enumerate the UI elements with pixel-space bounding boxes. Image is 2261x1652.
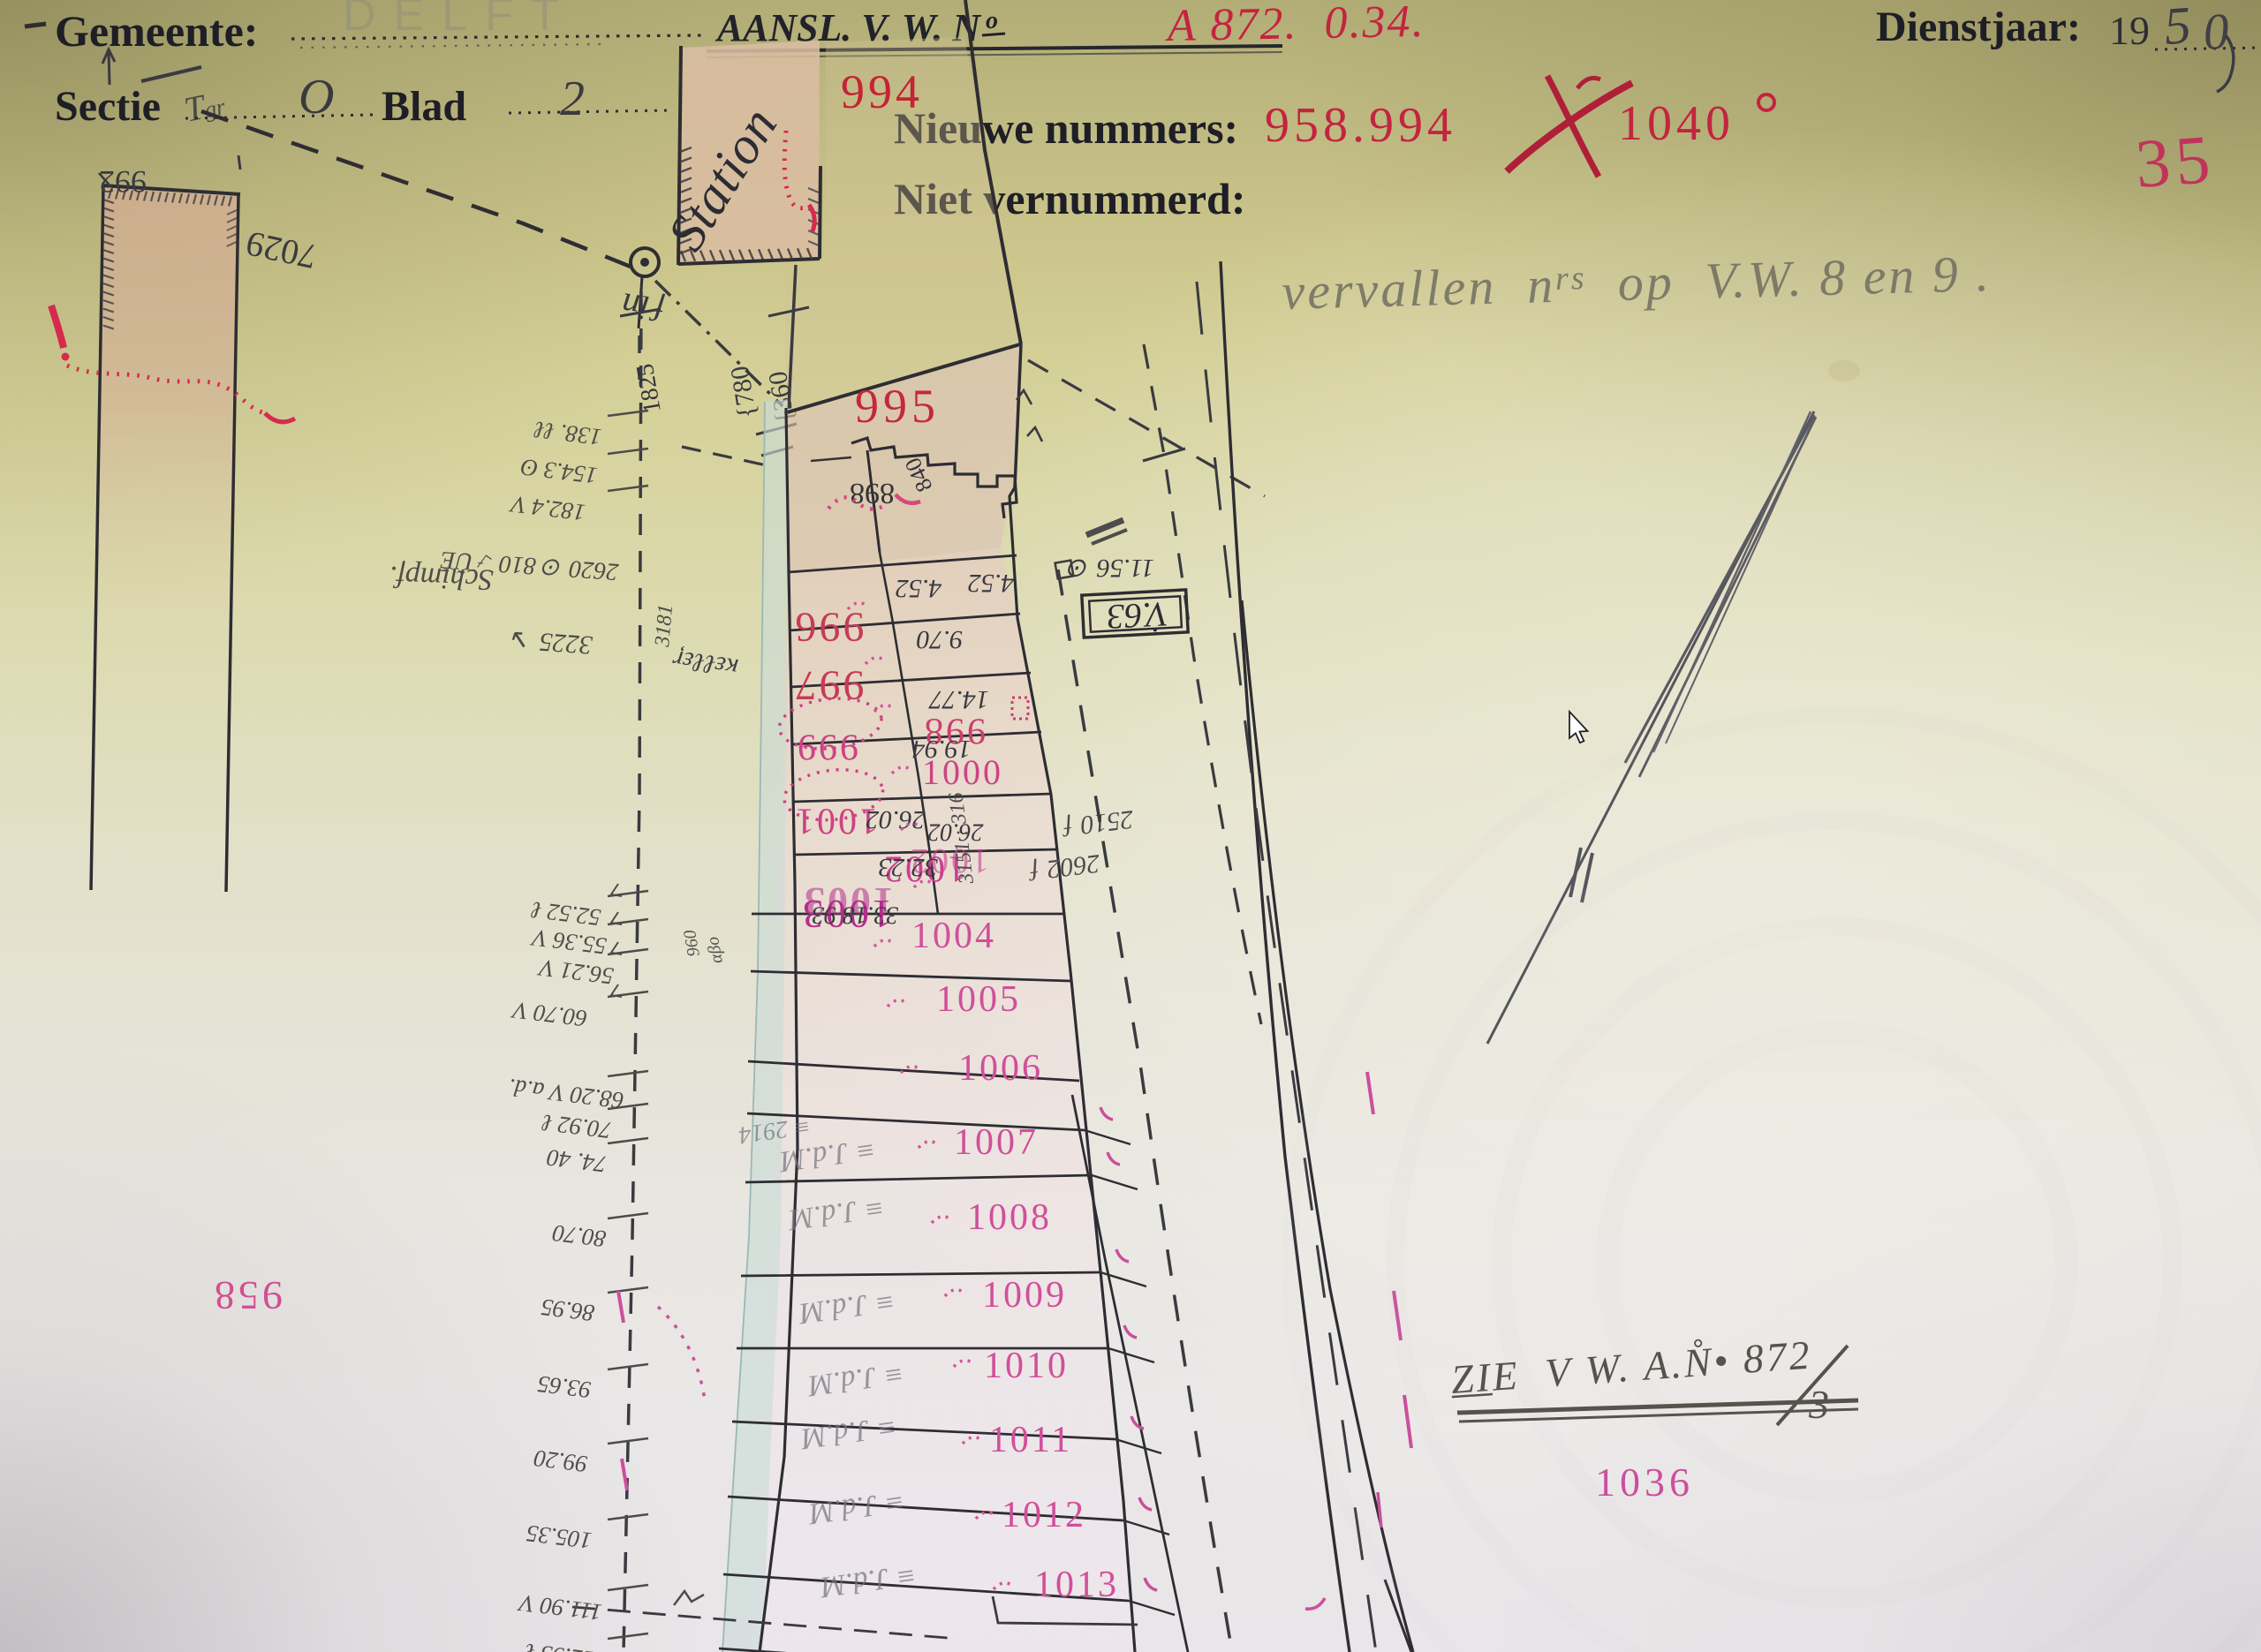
- svg-text:3: 3: [1808, 1382, 1829, 1427]
- svg-text:1007: 1007: [954, 1122, 1039, 1163]
- svg-text:14.77: 14.77: [927, 685, 989, 714]
- svg-text:33.18 93: 33.18 93: [812, 901, 899, 929]
- svg-text:35: 35: [2133, 120, 2218, 202]
- svg-text:V̇.63: V̇.63: [1106, 594, 1169, 637]
- svg-text:32.23: 32.23: [878, 853, 939, 882]
- svg-text:1012: 1012: [1002, 1495, 1086, 1535]
- svg-text:A 872. 0.34.: A 872. 0.34.: [1164, 0, 1425, 51]
- svg-text:Blad: Blad: [382, 83, 466, 130]
- svg-text:1036: 1036: [1595, 1460, 1694, 1505]
- svg-text:4.52: 4.52: [896, 574, 942, 603]
- svg-text:5: 5: [2162, 0, 2193, 56]
- svg-text:26.02: 26.02: [866, 805, 926, 834]
- svg-text:994: 994: [841, 65, 923, 118]
- svg-text:997: 997: [793, 662, 865, 709]
- svg-text:Gemeente:: Gemeente:: [55, 6, 258, 56]
- svg-text:958.994: 958.994: [1265, 98, 1456, 153]
- svg-text:19: 19: [2109, 8, 2150, 53]
- svg-text:1009: 1009: [982, 1275, 1067, 1316]
- svg-text:11.56 ⊙: 11.56 ⊙: [1067, 554, 1154, 583]
- svg-text:o: o: [986, 7, 998, 34]
- svg-text:1011: 1011: [989, 1420, 1072, 1460]
- svg-text:2: 2: [560, 72, 585, 126]
- svg-text:3225 ↘: 3225 ↘: [510, 625, 594, 660]
- svg-text:1040: 1040: [1618, 96, 1735, 151]
- svg-text:19.94: 19.94: [911, 735, 972, 764]
- svg-text:999: 999: [795, 726, 858, 766]
- svg-text:1013: 1013: [1034, 1565, 1119, 1605]
- svg-text:1014: 1014: [1164, 1644, 1252, 1652]
- svg-text:Dienstjaar:: Dienstjaar:: [1876, 4, 2081, 50]
- svg-text:1010: 1010: [984, 1346, 1069, 1386]
- svg-text:O: O: [299, 70, 334, 124]
- svg-text:996: 996: [793, 604, 865, 651]
- svg-text:Sectie: Sectie: [55, 83, 161, 130]
- svg-text:1006: 1006: [958, 1048, 1043, 1089]
- svg-text:ƒin: ƒin: [619, 285, 669, 331]
- svg-text:1004: 1004: [911, 916, 996, 956]
- svg-text:1008: 1008: [967, 1197, 1052, 1238]
- svg-text:1005: 1005: [936, 979, 1021, 1020]
- svg-text:958: 958: [211, 1273, 283, 1318]
- svg-text:3181: 3181: [651, 603, 677, 648]
- svg-text:DELFT: DELFT: [343, 0, 577, 41]
- svg-text:898: 898: [850, 477, 895, 509]
- svg-text:Schimpf.: Schimpf.: [389, 560, 494, 596]
- svg-text:9.70: 9.70: [917, 625, 964, 654]
- svg-text:995: 995: [855, 380, 940, 433]
- svg-text:4.52: 4.52: [968, 569, 1015, 598]
- svg-text:0: 0: [2201, 2, 2230, 61]
